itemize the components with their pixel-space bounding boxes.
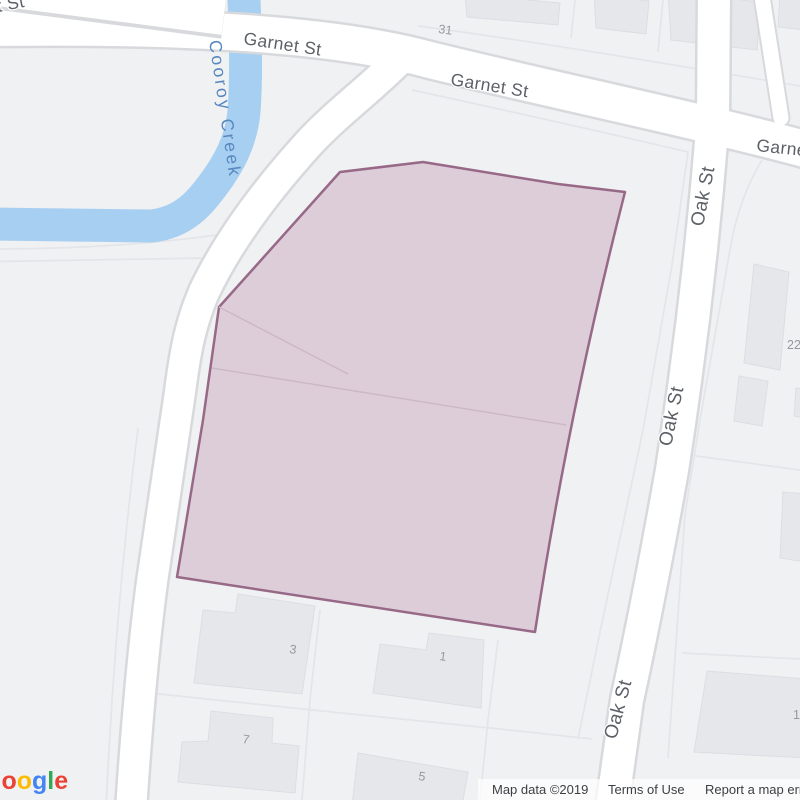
svg-text:31: 31 <box>438 22 454 38</box>
svg-text:Map data ©2019: Map data ©2019 <box>492 782 588 797</box>
svg-text:22: 22 <box>787 338 800 352</box>
svg-text:1: 1 <box>793 708 800 722</box>
svg-text:Terms of Use: Terms of Use <box>608 782 685 797</box>
svg-text:Report a map error: Report a map error <box>705 782 800 797</box>
svg-text:Google: Google <box>0 767 68 795</box>
